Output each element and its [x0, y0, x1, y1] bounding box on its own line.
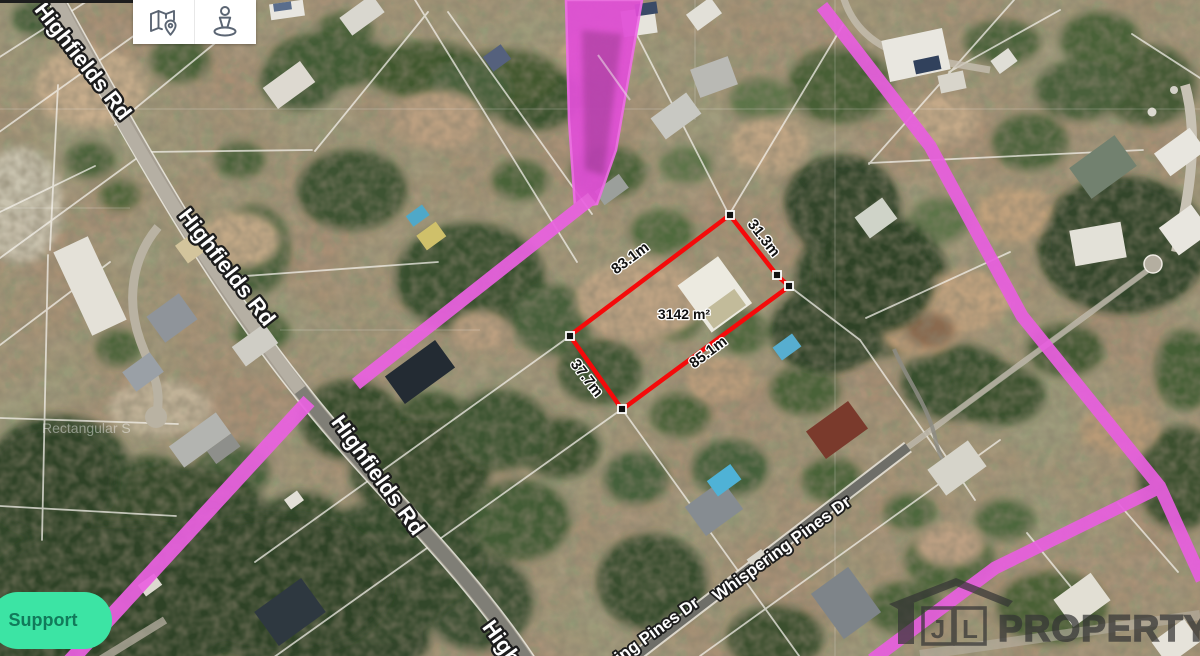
- svg-text:PROPERTY: PROPERTY: [998, 608, 1200, 649]
- svg-text:L: L: [962, 614, 978, 644]
- svg-text:3142 m²: 3142 m²: [658, 306, 710, 322]
- svg-text:Rectangular S: Rectangular S: [42, 420, 131, 436]
- svg-text:J: J: [931, 614, 945, 644]
